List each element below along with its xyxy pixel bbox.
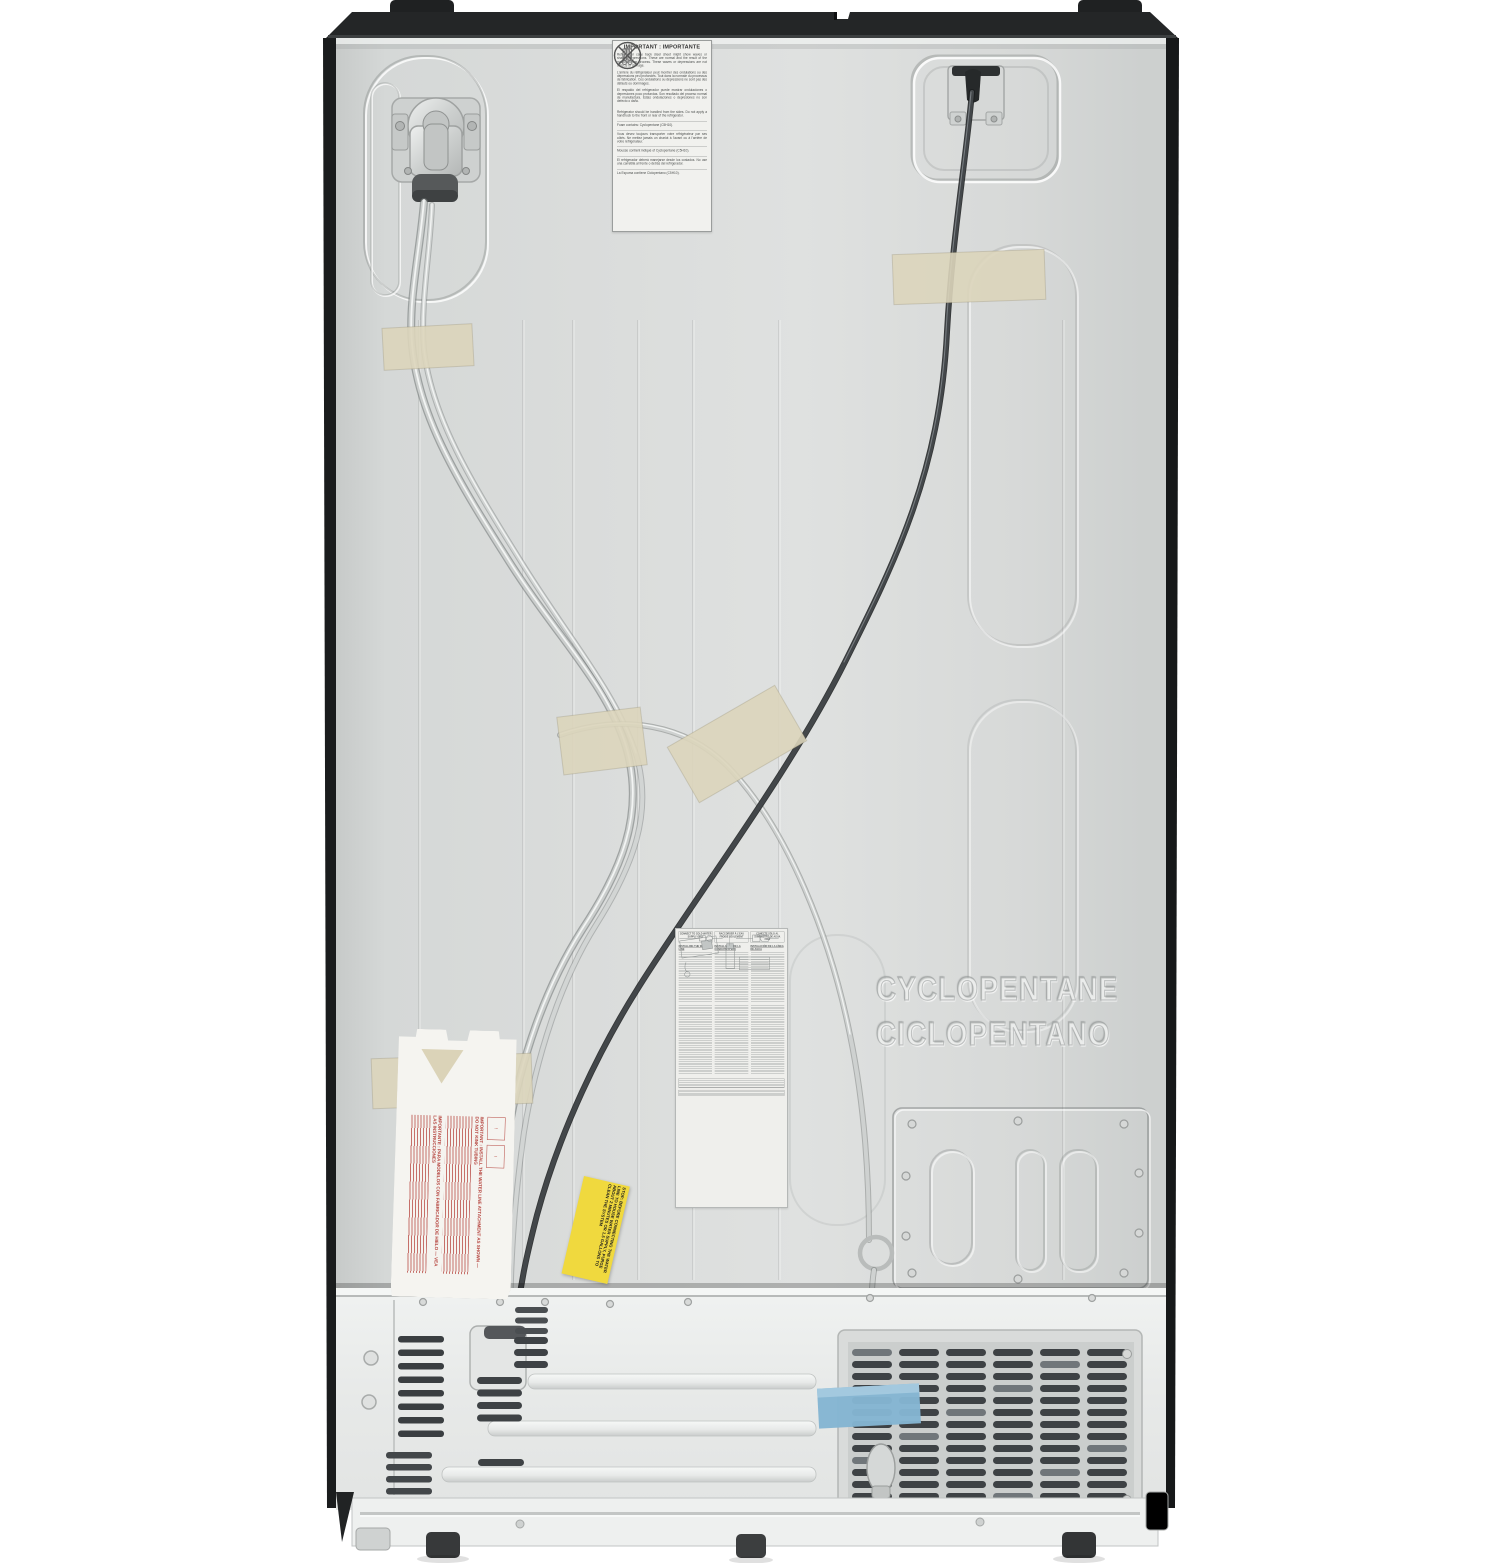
masking-tape	[557, 707, 647, 775]
grille-slot	[1087, 1433, 1127, 1440]
leveling-foot	[426, 1532, 460, 1558]
vent-slot	[386, 1476, 432, 1483]
grille-slot	[946, 1349, 986, 1356]
grille-slot	[993, 1361, 1033, 1368]
vent-slot	[398, 1377, 444, 1384]
bracket-screw	[463, 168, 470, 175]
grille-slot	[993, 1349, 1033, 1356]
tag-heading-es: IMPORTANTE : PARA MODELOS CON FABRICADOR…	[428, 1115, 442, 1273]
vent-slot	[398, 1404, 444, 1411]
grille-slot	[899, 1469, 939, 1476]
water-line-install-label: CONNECT TO COLD WATER SUPPLY ONLY RACCOR…	[675, 928, 788, 1208]
blue-tape	[817, 1383, 921, 1428]
foam-es: La Espuma contiene Ciclopentano (C5H10).	[617, 169, 707, 175]
vent-slot	[398, 1417, 444, 1424]
grille-slot	[1087, 1445, 1127, 1452]
grille-slot	[899, 1349, 939, 1356]
vent-slot	[398, 1431, 444, 1438]
grille-slot	[946, 1385, 986, 1392]
grille-slot	[1040, 1385, 1080, 1392]
bracket-screw	[396, 122, 405, 131]
grille-slot	[852, 1373, 892, 1380]
grille-slot	[946, 1469, 986, 1476]
grille-slot	[852, 1433, 892, 1440]
compressor-compartment	[336, 1283, 1168, 1563]
grille-slot	[993, 1445, 1033, 1452]
grille-slot	[1087, 1421, 1127, 1428]
grille-slot	[946, 1457, 986, 1464]
vent-slot	[478, 1459, 524, 1466]
cover-bolt	[364, 1351, 378, 1365]
grille-slot	[1040, 1433, 1080, 1440]
vent-slot	[477, 1415, 522, 1422]
cardboard-warning-tag: ! ! IMPORTANT : INSTALL THE WATER LINE A…	[391, 1028, 518, 1299]
vent-slot	[514, 1337, 548, 1344]
vent-slot	[386, 1488, 432, 1495]
grille-slot	[1087, 1457, 1127, 1464]
grille-slot	[899, 1373, 939, 1380]
grille-slot	[1087, 1361, 1127, 1368]
important-handling-label: IMPORTANT : IMPORTANTE Refrigerator case…	[612, 40, 712, 232]
grille-slot	[1040, 1349, 1080, 1356]
install-footer-box	[679, 1079, 785, 1088]
grille-slot	[993, 1481, 1033, 1488]
install-body-text-2	[679, 1005, 785, 1075]
grille-slot	[1040, 1409, 1080, 1416]
vent-slot	[515, 1307, 548, 1313]
handling-en: Refrigerator should be handled from the …	[617, 110, 707, 117]
door-gap-notch	[834, 12, 837, 20]
grille-slot	[899, 1433, 939, 1440]
grille-slot	[946, 1373, 986, 1380]
vent-slot	[398, 1363, 444, 1370]
bracket-screw	[468, 122, 477, 131]
cover-bolt	[362, 1395, 376, 1409]
grille-slot	[946, 1445, 986, 1452]
tag-fine-print-2	[406, 1115, 430, 1273]
grille-slot	[899, 1481, 939, 1488]
refrigerator-rear-photo: IMPORTANT : IMPORTANTE Refrigerator case…	[0, 0, 1500, 1563]
foam-fr: Mousse contient indiqué of Cyclopentane …	[617, 147, 707, 153]
vent-slot	[477, 1390, 522, 1397]
grille-slot	[899, 1445, 939, 1452]
grille-slot	[1040, 1445, 1080, 1452]
bracket-screw	[405, 168, 412, 175]
base-corner-left	[336, 1492, 354, 1542]
leveling-foot	[1062, 1532, 1096, 1558]
tag-text-block: ! ! IMPORTANT : INSTALL THE WATER LINE A…	[403, 1115, 505, 1276]
vent-slot	[515, 1328, 548, 1334]
handling-es: El refrigerador deberá manejarse desde l…	[617, 156, 707, 166]
grille-slot	[946, 1433, 986, 1440]
panel-crease	[637, 320, 638, 1280]
panel-crease	[1062, 320, 1063, 1280]
base-plate	[336, 1492, 1168, 1563]
panel-crease	[573, 320, 574, 1280]
grille-slot	[1087, 1397, 1127, 1404]
grille-slot	[852, 1349, 892, 1356]
fridge-artwork	[0, 0, 1500, 1563]
grille-slot	[1040, 1421, 1080, 1428]
install-footer-box-2	[679, 1090, 785, 1096]
grille-slot	[899, 1457, 939, 1464]
grille-slot	[1040, 1397, 1080, 1404]
grille-slot	[1087, 1409, 1127, 1416]
tag-fine-print	[441, 1116, 472, 1275]
tag-warning-icon: !	[487, 1117, 506, 1140]
foam-en: Foam contains: Cyclopentane (C5H10).	[617, 121, 707, 127]
grille-slot	[1087, 1373, 1127, 1380]
grille-slot	[852, 1361, 892, 1368]
grille-slot	[993, 1385, 1033, 1392]
vent-slot	[477, 1402, 522, 1409]
grille-slot	[993, 1469, 1033, 1476]
embossed-line-1: CYCLOPENTANE	[876, 966, 1078, 1011]
grille-slot	[1087, 1385, 1127, 1392]
grille-slot	[946, 1409, 986, 1416]
grille-slot	[1040, 1481, 1080, 1488]
grille-slot	[1040, 1457, 1080, 1464]
grille-slot	[993, 1397, 1033, 1404]
vent-slot	[398, 1350, 444, 1357]
fitting-diagram	[676, 929, 781, 948]
tag-warning-icon: !	[486, 1145, 505, 1168]
masking-tape	[892, 249, 1046, 304]
important-para-fr: L'arrière du réfrigérateur peut montrer …	[617, 71, 707, 86]
embossed-line-2: CICLOPENTANO	[876, 1011, 1078, 1056]
tag-die-cut	[421, 1049, 464, 1084]
grille-slot	[993, 1409, 1033, 1416]
vent-slot	[514, 1361, 548, 1368]
vent-slot	[515, 1318, 548, 1324]
grille-slot	[1040, 1361, 1080, 1368]
vent-slot	[398, 1390, 444, 1397]
cabinet-top-cap	[326, 0, 1178, 38]
cabinet-side-right	[1164, 38, 1179, 1508]
masking-tape	[382, 324, 474, 371]
grille-slot	[993, 1373, 1033, 1380]
power-cord-clamp	[948, 66, 1004, 125]
grille-slot	[1087, 1469, 1127, 1476]
handling-fr: Vous devez toujours transporter votre ré…	[617, 130, 707, 144]
grille-slot	[993, 1421, 1033, 1428]
grille-slot	[993, 1433, 1033, 1440]
vent-slot	[514, 1349, 548, 1356]
grille-screw	[1123, 1350, 1132, 1359]
grille-slot	[1087, 1481, 1127, 1488]
grille-slot	[899, 1361, 939, 1368]
grille-slot	[946, 1361, 986, 1368]
base-bracket	[356, 1528, 390, 1550]
grille-slot	[1087, 1349, 1127, 1356]
no-handtruck-icon	[613, 41, 642, 70]
grille-slot	[1040, 1373, 1080, 1380]
cyclopentane-embossed-text: CYCLOPENTANE CICLOPENTANO	[876, 966, 1078, 1056]
panel-crease	[1063, 320, 1064, 1280]
vent-slot	[477, 1377, 522, 1384]
grille-slot	[946, 1397, 986, 1404]
important-para-es: El respaldo del refrigerador puede mostr…	[617, 89, 707, 104]
grille-slot	[946, 1421, 986, 1428]
panel-crease	[572, 320, 573, 1280]
grille-slot	[993, 1457, 1033, 1464]
grille-slot	[946, 1481, 986, 1488]
vent-slot	[386, 1464, 432, 1471]
tag-heading-en: IMPORTANT : INSTALL THE WATER LINE ATTAC…	[470, 1116, 484, 1274]
base-bracket	[1146, 1492, 1168, 1530]
leveling-foot	[736, 1534, 766, 1558]
vent-slot	[398, 1336, 444, 1343]
cabinet-side-left	[323, 38, 338, 1508]
grille-slot	[1040, 1469, 1080, 1476]
vent-slot	[386, 1452, 432, 1459]
